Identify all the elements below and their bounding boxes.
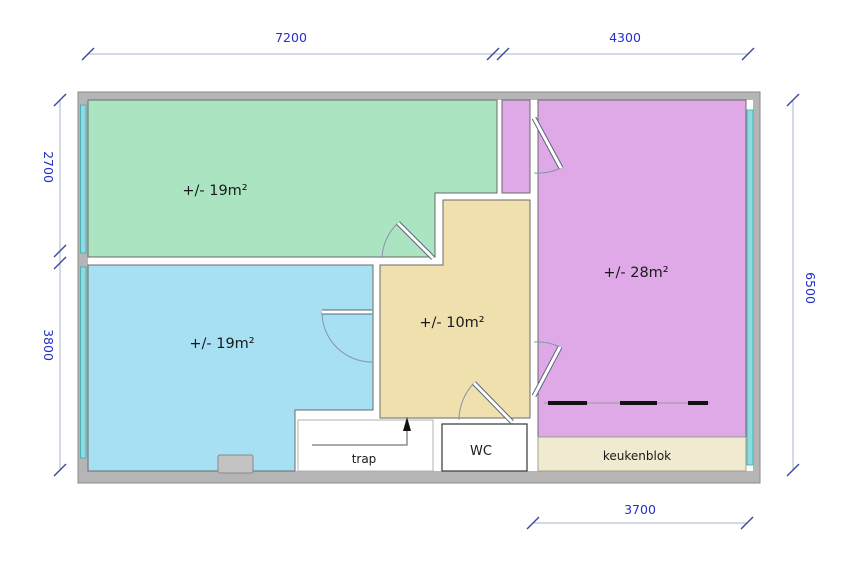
dimension-top-left-value: 7200 — [275, 30, 307, 45]
room-label-middle: +/- 10m² — [419, 315, 484, 331]
dimension-top-right-value: 4300 — [609, 30, 641, 45]
dimension-left-upper-value: 2700 — [41, 151, 56, 183]
wc-label: WC — [470, 444, 492, 459]
floor-plan-canvas: +/- 19m² +/- 19m² +/- 10m² +/- 28m² trap… — [0, 0, 857, 576]
entry-strip — [502, 100, 530, 193]
room-label-bottom-left: +/- 19m² — [189, 336, 254, 352]
window-left-lower — [81, 267, 87, 458]
dimension-top: 7200 4300 — [82, 30, 754, 60]
dimension-right: 6500 — [787, 94, 818, 476]
room-label-top-left: +/- 19m² — [182, 183, 247, 199]
window-left-upper — [81, 105, 87, 253]
dimension-right-value: 6500 — [803, 272, 818, 304]
window-right — [747, 110, 753, 465]
kitchen-label: keukenblok — [603, 449, 671, 463]
floor-plan-drawing: +/- 19m² +/- 19m² +/- 10m² +/- 28m² trap… — [0, 0, 857, 576]
dimension-left-lower-value: 3800 — [41, 329, 56, 361]
dimension-bottom-value: 3700 — [624, 502, 656, 517]
chimney-block — [218, 455, 253, 473]
dimension-bottom: 3700 — [527, 502, 753, 529]
room-label-right: +/- 28m² — [603, 265, 668, 281]
stairs-label: trap — [352, 452, 377, 466]
dimension-left: 2700 3800 — [41, 94, 66, 476]
